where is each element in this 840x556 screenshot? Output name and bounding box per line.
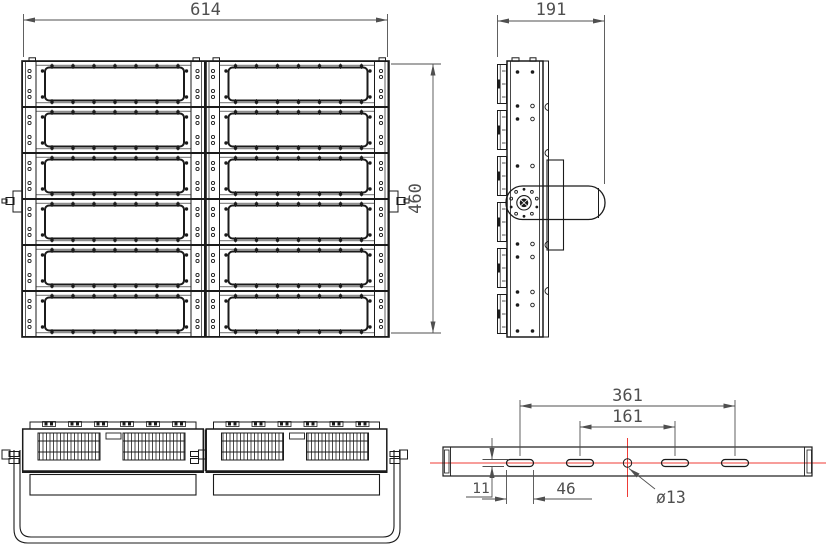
module-edge xyxy=(498,111,507,150)
led-module-row xyxy=(23,107,205,153)
inner-slot-spacing-label: 161 xyxy=(612,407,643,427)
u-bracket xyxy=(14,450,400,543)
module-edge xyxy=(498,295,507,334)
slot-length-label: 46 xyxy=(556,479,575,498)
front-view: 614 460 xyxy=(2,0,441,337)
side-view: 191 xyxy=(498,0,606,337)
led-module-row xyxy=(206,61,388,107)
led-module-row xyxy=(23,199,205,245)
dimension-slot-length: 46 xyxy=(482,470,592,504)
led-module-row xyxy=(23,291,205,337)
led-module-row xyxy=(206,245,388,291)
dimension-side-depth: 191 xyxy=(498,0,605,184)
led-module-row xyxy=(23,61,205,107)
side-depth-label: 191 xyxy=(536,0,567,20)
dimension-center-hole: ø13 xyxy=(627,467,685,507)
drawing-svg: 614 460 xyxy=(0,0,840,556)
front-height-label: 460 xyxy=(406,183,426,214)
module-edge xyxy=(498,203,507,242)
technical-drawing-sheet: 614 460 xyxy=(0,0,840,556)
heatsink-half xyxy=(22,422,204,496)
led-module-row xyxy=(23,245,205,291)
side-back-plate xyxy=(543,61,549,337)
outer-slot-spacing-label: 361 xyxy=(612,386,643,406)
led-module-row xyxy=(206,107,388,153)
bracket-crossbar-edge xyxy=(547,160,564,250)
led-module-row xyxy=(206,199,388,245)
pivot-joint xyxy=(510,188,538,218)
mounting-bracket-detail: 361 161 11 46 ø13 xyxy=(430,386,826,507)
led-module-grid xyxy=(2,58,409,337)
module-edge xyxy=(498,157,507,196)
left-pivot-bolt xyxy=(2,191,22,212)
module-edge xyxy=(498,65,507,104)
led-module-row xyxy=(206,153,388,199)
led-module-row xyxy=(206,291,388,337)
bottom-view xyxy=(2,422,408,544)
led-module-row xyxy=(23,153,205,199)
center-hole-label: ø13 xyxy=(656,488,686,507)
heatsink-half xyxy=(206,422,388,496)
front-width-label: 614 xyxy=(190,0,221,20)
module-edge xyxy=(498,249,507,288)
slot-width-label: 11 xyxy=(472,481,489,497)
dimension-front-width: 614 xyxy=(24,0,388,57)
